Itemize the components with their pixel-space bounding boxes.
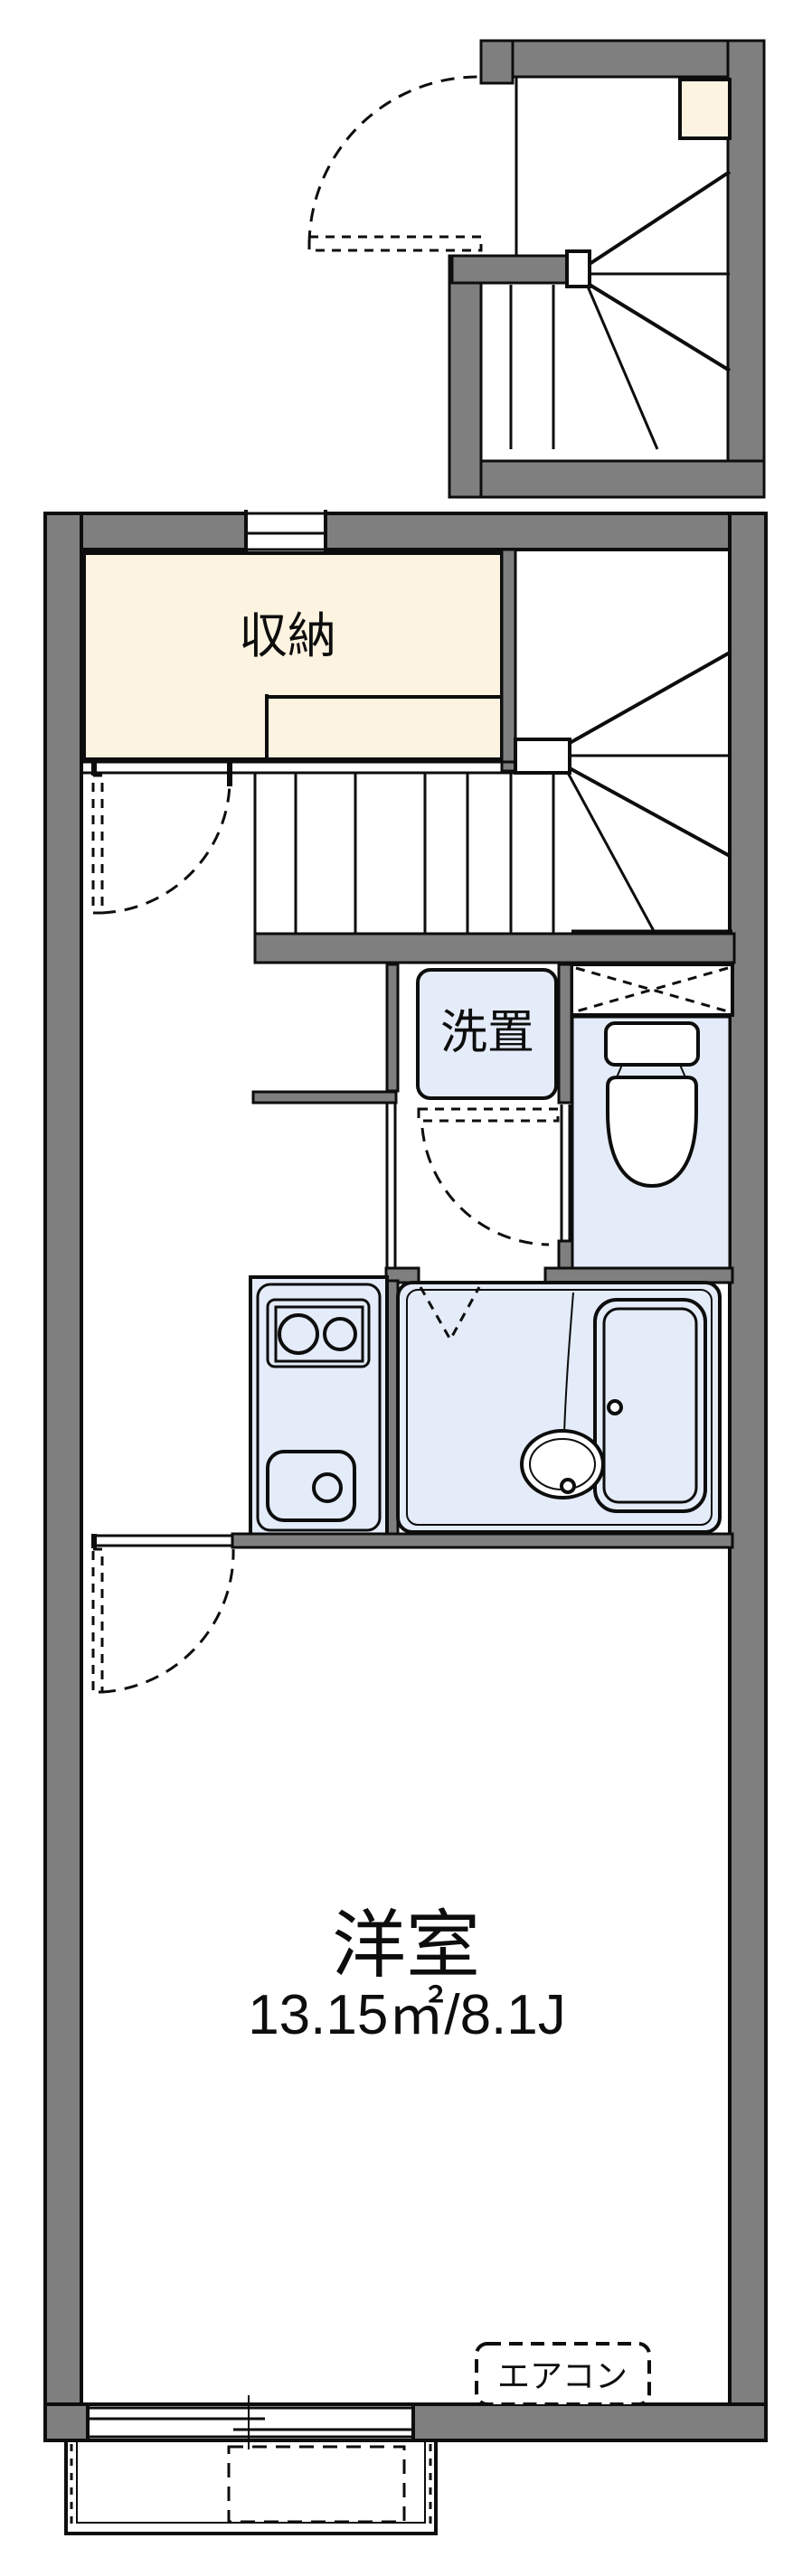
wall-corridor-vestibule: [253, 1092, 396, 1103]
wall-sanitary-bottom-right: [545, 1268, 732, 1283]
stair-newel-post-main: [515, 739, 570, 773]
stairwell-wall-right: [728, 41, 764, 497]
bathtub-drain: [609, 1401, 621, 1414]
closet-label: 収納: [239, 609, 336, 663]
toilet-bowl: [608, 1077, 696, 1186]
stairwell-wall-left-upper: [481, 41, 513, 83]
wall-laundry-toilet: [559, 964, 571, 1103]
wall-room-top: [232, 1534, 732, 1547]
toilet-room: [572, 1017, 730, 1270]
washbasin-drain: [562, 1480, 574, 1492]
shoe-cabinet: [680, 80, 730, 138]
wall-laundry-left: [387, 964, 398, 1091]
toilet-shelf: [571, 964, 732, 1015]
room-size-label: 13.15㎡/8.1J: [248, 1984, 566, 2046]
balcony-outer-rail: [66, 2440, 436, 2534]
kitchen: [250, 1277, 387, 1537]
unit-wall-right: [730, 513, 766, 2440]
stairwell-wall-left-lower: [449, 256, 481, 497]
upper-stairwell: [309, 41, 764, 497]
wall-under-stairs: [255, 934, 734, 963]
stairwell-wall-bottom: [449, 461, 764, 497]
floor-plan-canvas: 収納: [0, 0, 812, 2576]
window-top: [246, 510, 326, 553]
main-unit: 収納: [45, 510, 766, 2449]
balcony: [66, 2440, 436, 2534]
wall-closet-stairs: [502, 550, 515, 771]
laundry-label: 洗置: [440, 1007, 534, 1059]
room-label: 洋室: [332, 1904, 480, 1987]
toilet-tank: [606, 1023, 698, 1065]
closet-area: 収納: [84, 553, 502, 759]
laundry-area: 洗置: [418, 970, 556, 1098]
balcony-inner-rail: [77, 2440, 425, 2523]
unit-wall-top: [45, 513, 766, 550]
stairwell-wall-top: [481, 41, 764, 77]
aircon-box: エアコン: [477, 2344, 649, 2404]
balcony-dashed-zone: [229, 2447, 404, 2522]
aircon-label: エアコン: [497, 2357, 628, 2394]
stairwell-wall-stub: [452, 256, 567, 283]
stair-newel-post-upper: [567, 251, 590, 287]
floor-plan: 収納: [0, 0, 812, 2576]
bathroom: [387, 1281, 720, 1536]
unit-wall-left: [45, 513, 81, 2440]
